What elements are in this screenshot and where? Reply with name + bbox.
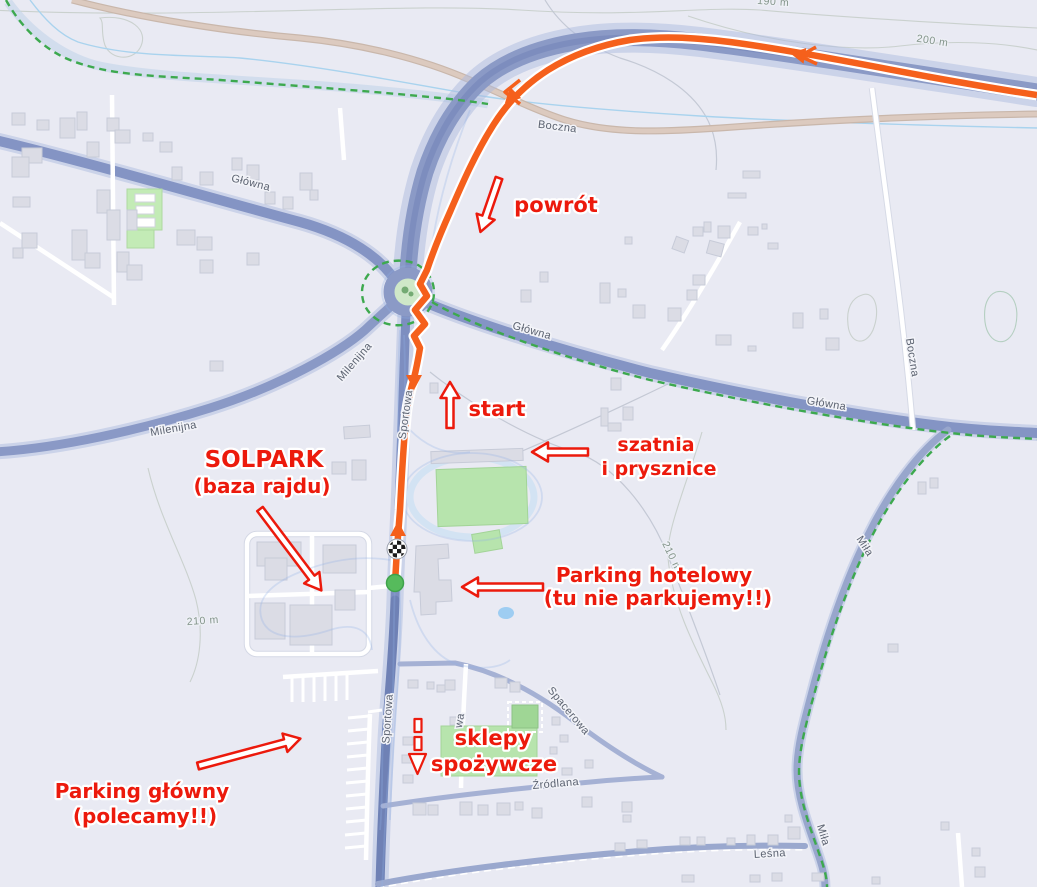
annotation-sklepy-line2: spożywcze <box>431 752 557 776</box>
annotation-parking-hotelowy-line2: (tu nie parkujemy!!) <box>544 586 772 610</box>
annotation-szatnia-line2: i prysznice <box>601 458 716 480</box>
map-canvas[interactable]: Główna Boczna Milenijna Milenijna Główna… <box>0 0 1037 887</box>
annotation-powrot: powrót <box>514 193 598 217</box>
map-image: Główna Boczna Milenijna Milenijna Główna… <box>0 0 1037 887</box>
annotation-solpark-line2: (baza rajdu) <box>194 474 331 498</box>
annotation-szatnia-line1: szatnia <box>617 434 694 456</box>
annotation-parking-glowny-line2: (polecamy!!) <box>73 804 217 828</box>
start-marker-green-dot <box>387 575 404 592</box>
finish-marker-checkered-flag <box>387 539 407 559</box>
annotation-parking-hotelowy-line1: Parking hotelowy <box>556 563 752 587</box>
annotation-sklepy-line1: sklepy <box>455 726 532 750</box>
annotation-solpark-line1: SOLPARK <box>205 447 325 473</box>
annotation-parking-glowny-line1: Parking główny <box>55 779 229 803</box>
annotation-start: start <box>468 397 525 421</box>
street-label-lesna: Leśna <box>754 847 787 861</box>
pond <box>498 607 514 619</box>
contour-label-210-left: 210 m <box>186 614 219 628</box>
sports-field <box>436 466 528 526</box>
